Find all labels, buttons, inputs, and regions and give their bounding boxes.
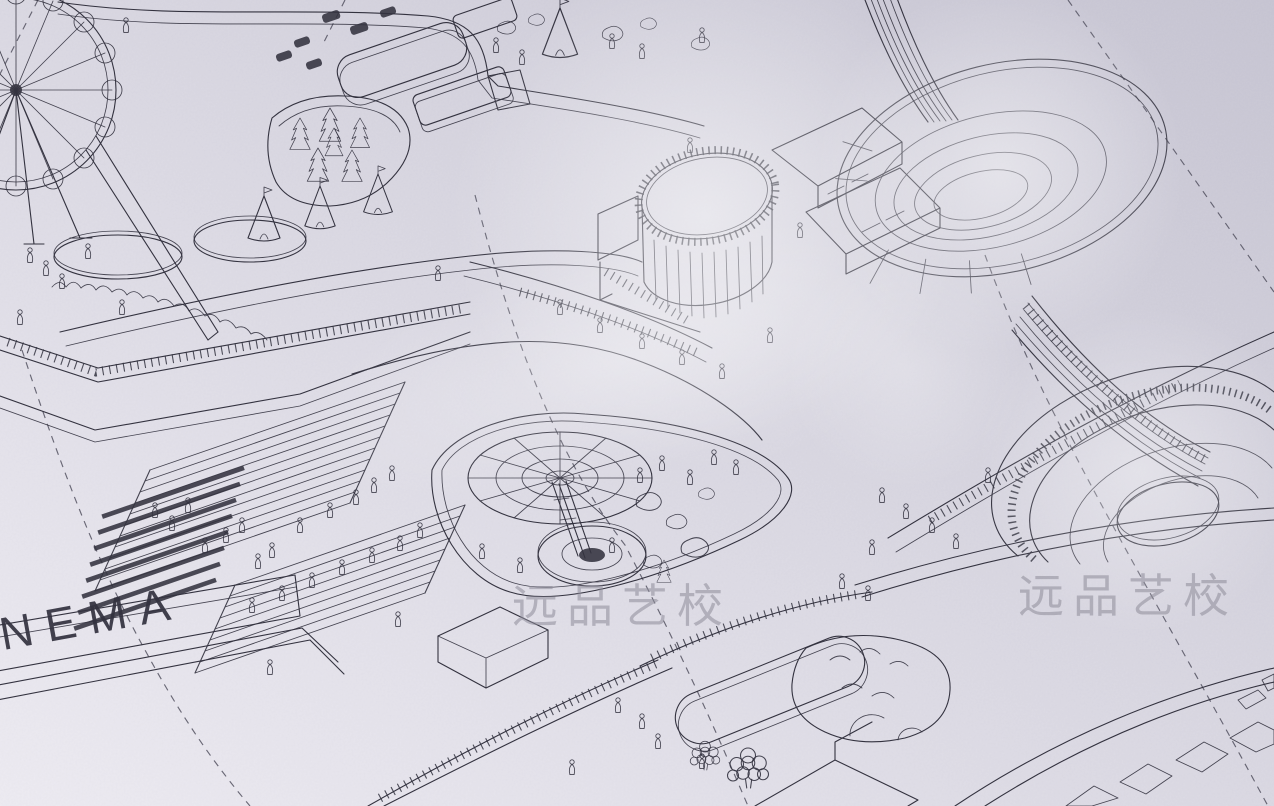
photo-of-architectural-drawing: CINEMA [0,0,1274,806]
watermark-text-right: 远品艺校 [1018,570,1238,622]
watermark-text-center: 远品艺校 [512,580,732,632]
